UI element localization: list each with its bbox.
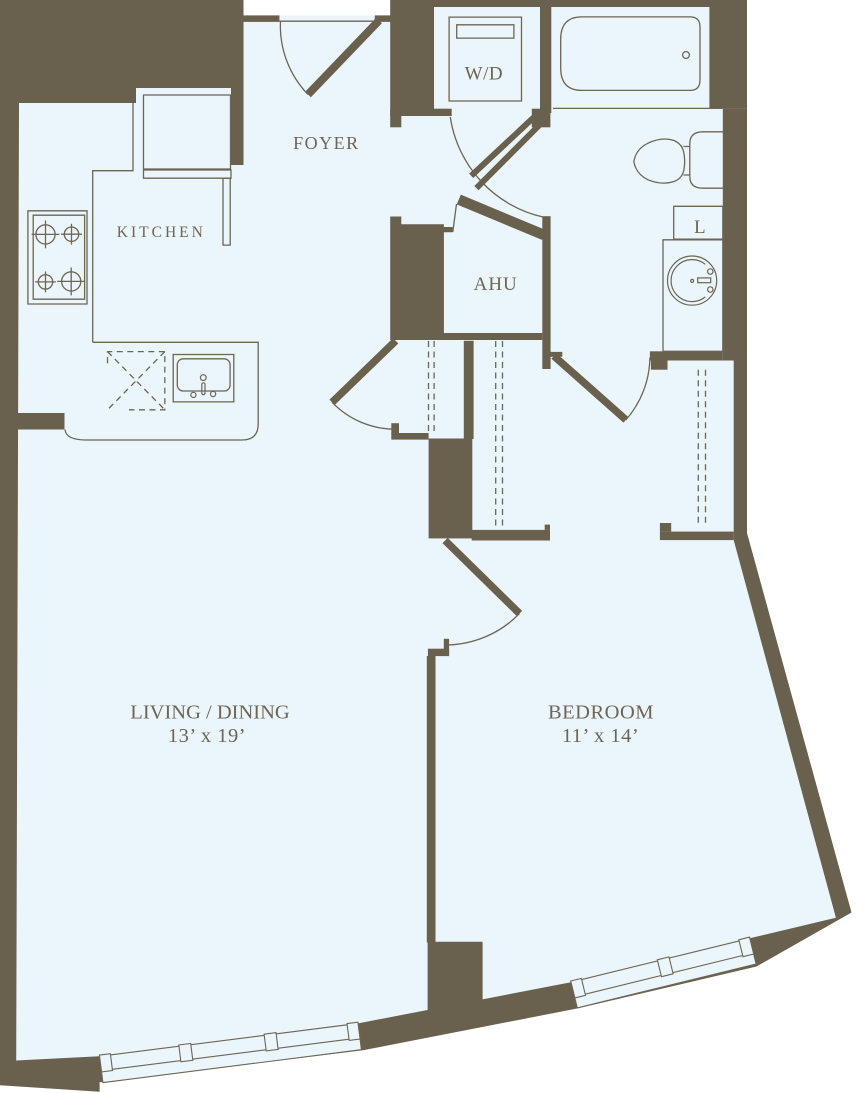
svg-text:W/D: W/D [465, 63, 503, 84]
svg-text:13’ x 19’: 13’ x 19’ [168, 725, 246, 747]
svg-text:L: L [694, 217, 706, 238]
svg-text:AHU: AHU [474, 274, 518, 295]
svg-text:BEDROOM: BEDROOM [548, 702, 654, 724]
svg-text:LIVING / DINING: LIVING / DINING [130, 702, 290, 724]
svg-text:FOYER: FOYER [293, 133, 360, 153]
svg-text:11’ x 14’: 11’ x 14’ [562, 725, 639, 747]
svg-text:KITCHEN: KITCHEN [117, 224, 206, 241]
